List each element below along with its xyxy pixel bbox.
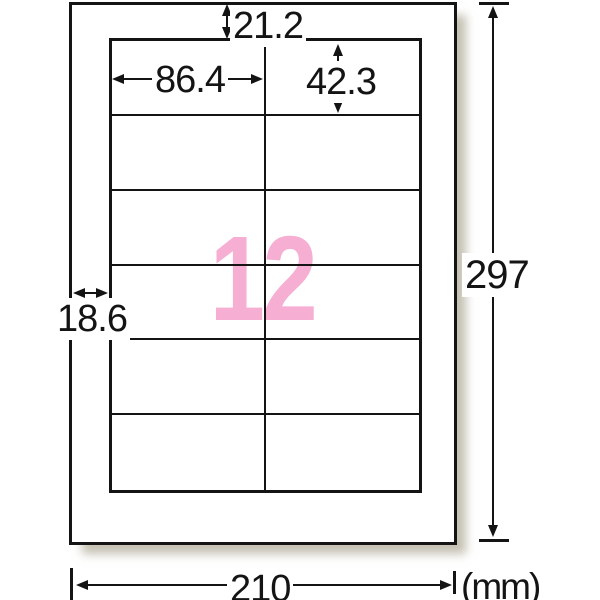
arrowhead-left-icon [112, 74, 124, 84]
unit-label: (mm) [458, 566, 542, 600]
page-width-value: 210 [227, 568, 293, 600]
arrowhead-right-icon [440, 580, 452, 590]
label-cell [112, 266, 266, 341]
label-cell [266, 340, 420, 415]
label-cell [266, 266, 420, 341]
top-margin-value: 21.2 [230, 5, 306, 47]
label-width-value: 86.4 [152, 59, 228, 101]
page-height-value: 297 [462, 253, 532, 297]
arrowhead-up-icon [333, 44, 343, 56]
extension-tick [479, 2, 509, 5]
arrowhead-right-icon [96, 288, 108, 298]
label-cell [266, 116, 420, 191]
label-cell [112, 340, 266, 415]
label-cell [266, 415, 420, 490]
arrowhead-up-icon [488, 6, 498, 18]
diagram-canvas: 12 21.2 86.4 42.3 18.6 297 [0, 0, 600, 600]
label-cell [112, 116, 266, 191]
arrowhead-right-icon [251, 74, 263, 84]
left-margin-value: 18.6 [54, 298, 130, 340]
arrowhead-down-icon [488, 525, 498, 537]
label-height-value: 42.3 [303, 61, 379, 103]
extension-tick [479, 539, 509, 542]
label-cell [266, 191, 420, 266]
extension-tick [70, 568, 73, 600]
label-cell [112, 415, 266, 490]
label-cell [112, 191, 266, 266]
extension-tick [453, 571, 456, 594]
label-grid [109, 38, 422, 493]
arrowhead-left-icon [76, 580, 88, 590]
arrowhead-left-icon [73, 288, 85, 298]
